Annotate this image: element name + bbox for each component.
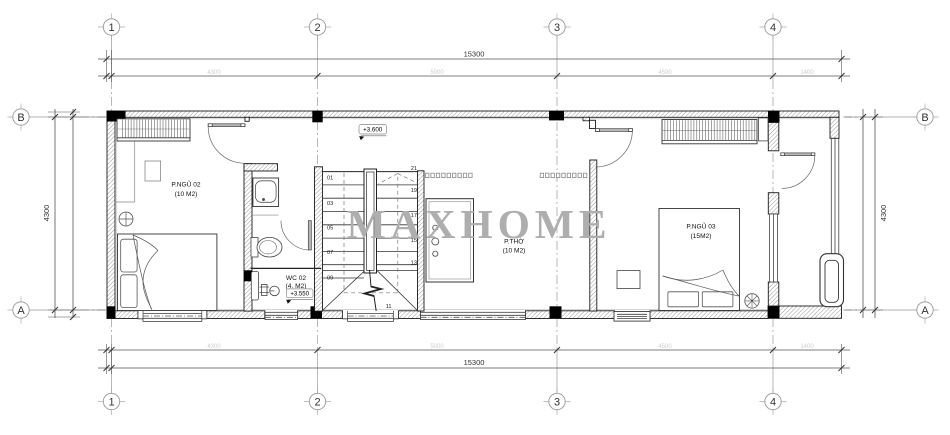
svg-text:1400: 1400 — [800, 344, 814, 350]
svg-text:09: 09 — [327, 276, 333, 282]
svg-text:P.NGỦ 02: P.NGỦ 02 — [171, 180, 201, 189]
svg-text:MAXHOME: MAXHOME — [347, 201, 612, 247]
svg-text:2: 2 — [314, 22, 320, 34]
svg-text:07: 07 — [327, 250, 333, 256]
svg-text:B: B — [17, 112, 24, 124]
svg-text:4300: 4300 — [207, 70, 221, 76]
svg-text:+3.550: +3.550 — [290, 292, 309, 298]
svg-text:15300: 15300 — [464, 50, 485, 59]
svg-text:19: 19 — [411, 188, 417, 194]
svg-text:15300: 15300 — [464, 358, 485, 367]
svg-text:5000: 5000 — [430, 344, 444, 350]
svg-text:(10 M2): (10 M2) — [175, 191, 198, 198]
svg-text:A: A — [921, 305, 929, 317]
svg-text:01: 01 — [327, 176, 333, 182]
svg-text:(10 M2): (10 M2) — [503, 248, 526, 255]
svg-text:21: 21 — [411, 166, 417, 172]
svg-text:4300: 4300 — [207, 344, 221, 350]
svg-text:3: 3 — [554, 397, 560, 409]
svg-text:A: A — [17, 305, 25, 317]
svg-text:1: 1 — [108, 397, 114, 409]
svg-text:4500: 4500 — [658, 70, 672, 76]
svg-text:(15M2): (15M2) — [691, 233, 712, 240]
svg-text:13: 13 — [411, 260, 417, 266]
svg-text:4300: 4300 — [879, 205, 888, 222]
svg-text:5000: 5000 — [430, 70, 444, 76]
svg-text:11: 11 — [386, 304, 392, 310]
svg-text:03: 03 — [327, 201, 333, 207]
svg-text:4: 4 — [770, 397, 776, 409]
svg-text:B: B — [921, 112, 928, 124]
svg-text:05: 05 — [327, 226, 333, 232]
svg-text:WC 02: WC 02 — [286, 275, 306, 282]
svg-text:3: 3 — [554, 22, 560, 34]
svg-text:+3.600: +3.600 — [363, 127, 383, 134]
svg-text:P.NGỦ 03: P.NGỦ 03 — [686, 222, 716, 231]
svg-text:4: 4 — [770, 22, 776, 34]
svg-text:1: 1 — [108, 22, 114, 34]
svg-text:4300: 4300 — [42, 205, 51, 222]
svg-text:2: 2 — [314, 397, 320, 409]
svg-text:4500: 4500 — [658, 344, 672, 350]
svg-text:1400: 1400 — [800, 70, 814, 76]
